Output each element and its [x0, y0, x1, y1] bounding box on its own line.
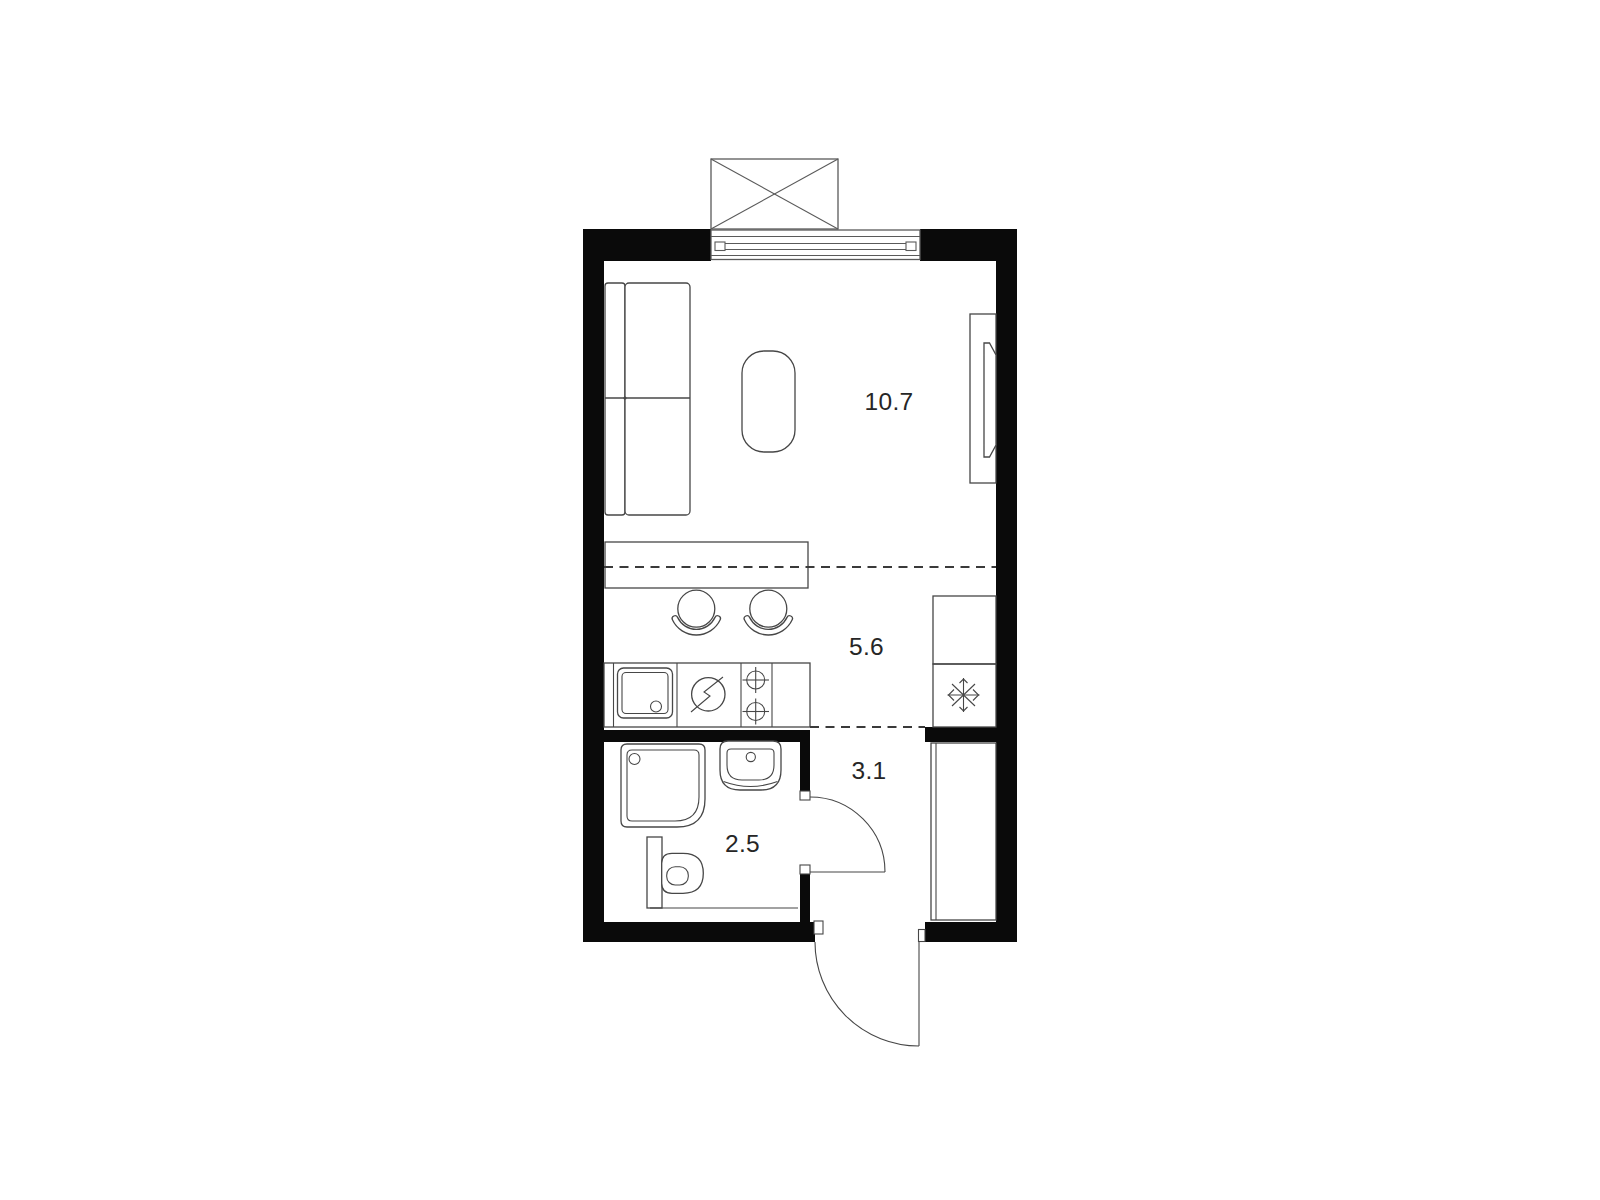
bathroom-door: [810, 797, 885, 872]
bar-stool: [675, 590, 718, 632]
wall-bathroom-right-lower: [800, 874, 810, 922]
room-label-living: 10.7: [865, 388, 914, 415]
toilet: [647, 837, 703, 908]
wardrobe-door-panel: [984, 343, 996, 457]
floor-plan-canvas: 10.7 5.6 3.1 2.5: [0, 0, 1600, 1200]
coffee-table: [742, 351, 795, 452]
toilet-cistern: [647, 837, 662, 908]
stove-lightning: [691, 677, 723, 712]
stool-seat: [750, 590, 787, 627]
wall-top-right: [920, 229, 1017, 261]
sofa-joint-dot: [623, 396, 626, 399]
floor-plan-page: 10.7 5.6 3.1 2.5: [0, 0, 1600, 1200]
kitchen-counter: [604, 663, 810, 727]
electric-stove-icon: [691, 677, 725, 712]
wall-bottom-left: [583, 922, 815, 942]
room-label-kitchen: 5.6: [849, 633, 884, 660]
room-label-hallway: 3.1: [852, 757, 887, 784]
closet-outline: [931, 743, 996, 920]
washbasin: [720, 741, 781, 790]
washbasin-faucet: [746, 752, 755, 761]
balcony-box: [711, 159, 838, 229]
door-jambs: [800, 791, 925, 942]
wall-bottom-right: [925, 922, 1017, 942]
sofa-backrest: [605, 283, 625, 515]
entrance-door: [815, 942, 919, 1046]
kitchen-cabinet: [933, 596, 996, 664]
snowflake-icon: [948, 678, 980, 712]
sofa-seat: [625, 283, 690, 515]
kitchen-sink: [618, 668, 673, 718]
wall-bathroom-top: [604, 730, 810, 742]
window-unit: [711, 230, 920, 260]
room-label-bathroom: 2.5: [725, 830, 760, 857]
sofa: [605, 283, 690, 515]
window-end-cap: [715, 242, 725, 251]
bath-door-jamb-top: [800, 791, 810, 800]
shower-tray: [621, 744, 705, 827]
entrance-door-swing-arc: [815, 942, 919, 1046]
wall-kitchen-hallway: [925, 727, 996, 742]
hob-burner-icon: [743, 667, 770, 693]
shower-head: [629, 754, 640, 765]
entry-door-jamb-left: [814, 921, 823, 934]
window-end-cap: [906, 242, 916, 251]
fridge-unit: [933, 596, 996, 727]
wall-top-left: [583, 229, 711, 261]
washbasin-outer: [720, 741, 781, 790]
bathroom-door-swing-arc: [810, 797, 885, 872]
entry-door-jamb-right: [919, 930, 926, 942]
bath-door-jamb-bottom: [800, 865, 810, 874]
toilet-bowl: [662, 853, 704, 893]
bar-counter: [605, 542, 808, 588]
wall-right: [996, 229, 1017, 942]
hob-burner-icon: [743, 699, 770, 725]
sink-drain: [651, 701, 662, 712]
stool-seat: [678, 590, 715, 627]
wardrobe: [970, 314, 996, 483]
wall-left: [583, 229, 604, 942]
bar-stool: [747, 590, 790, 632]
hallway-closet: [931, 743, 996, 920]
wall-bathroom-right-upper: [800, 730, 810, 791]
